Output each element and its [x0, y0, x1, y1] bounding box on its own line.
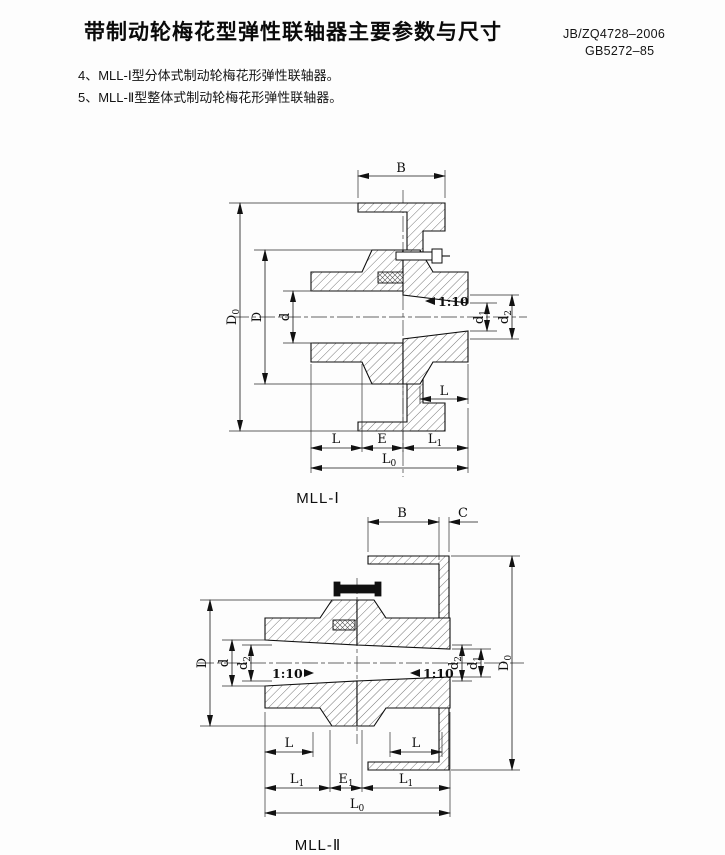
- mll2-taper-right-label: 1:10: [423, 666, 454, 681]
- mll2-dim-label-d1: d1: [466, 656, 483, 670]
- mll2-dim-label-D0: D0: [497, 655, 514, 671]
- mll2-caption: MLL-Ⅱ: [295, 837, 342, 854]
- mll2-dim-label-E1: E1: [338, 772, 353, 789]
- mll1-dim-label-d: d: [278, 313, 293, 321]
- mll1-dim-label-D: D: [250, 312, 265, 322]
- mll2-drawing: B C D0 D d d2 d2 d1 1:10 1:10 L L L1 E1 …: [195, 506, 524, 854]
- mll2-elastomer-spider: [333, 620, 355, 630]
- mll1-dim-label-L1: L1: [428, 432, 442, 449]
- mll1-dim-label-L: L: [332, 432, 341, 447]
- mll2-dim-label-C: C: [458, 506, 468, 521]
- mll2-dim-label-L1-right: L1: [399, 772, 413, 789]
- mll1-dim-label-D0: D0: [225, 309, 242, 325]
- mll2-dim-label-d: d: [217, 659, 232, 667]
- mll1-dim-label-B: B: [396, 161, 406, 176]
- mll2-dim-label-L1-left: L1: [290, 772, 304, 789]
- mll2-dim-label-d2-left: d2: [236, 656, 253, 670]
- mll2-dim-label-D: D: [195, 658, 210, 668]
- mll1-dim-label-E: E: [377, 432, 387, 447]
- mll1-dim-label-d1: d1: [472, 310, 489, 324]
- document-page: 带制动轮梅花型弹性联轴器主要参数与尺寸 JB/ZQ4728–2006 GB527…: [0, 0, 725, 855]
- mll1-dim-label-L-hub: L: [440, 384, 449, 399]
- mll2-dim-label-B: B: [397, 506, 407, 521]
- mll1-dim-label-L0: L0: [382, 452, 397, 469]
- mll1-taper-label: 1:10: [438, 294, 469, 309]
- technical-drawings: B D0 D d d1 d2 1:10 L L E L1 L0 MLL-Ⅰ: [0, 0, 725, 855]
- mll2-taper-left-arrow-icon: [304, 669, 314, 677]
- mll2-taper-right-arrow-icon: [410, 669, 420, 677]
- mll1-caption: MLL-Ⅰ: [296, 490, 340, 507]
- mll2-flange-bolt: [334, 582, 381, 596]
- mll1-elastomer-spider: [378, 272, 403, 283]
- mll2-dim-label-L-right: L: [412, 736, 421, 751]
- mll2-dim-label-L-left: L: [285, 736, 294, 751]
- mll2-dim-label-L0: L0: [350, 797, 365, 814]
- mll1-drawing: B D0 D d d1 d2 1:10 L L E L1 L0 MLL-Ⅰ: [225, 161, 527, 507]
- mll1-dim-label-d2: d2: [497, 310, 514, 324]
- mll2-taper-left-label: 1:10: [272, 666, 303, 681]
